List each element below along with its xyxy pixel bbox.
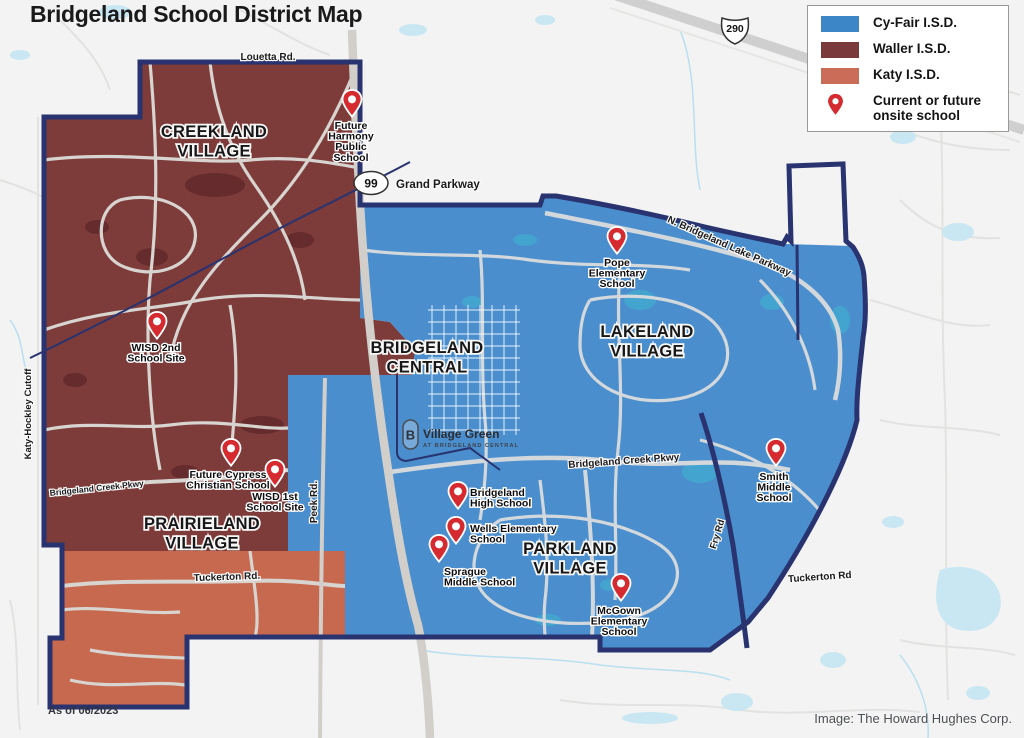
road-label-katy-hockley-cutoff: Katy-Hockley Cutoff [23, 368, 34, 460]
road-label-tuckerton-rd-west: Tuckerton Rd. [193, 571, 260, 584]
village-label-parkland: PARKLANDVILLAGE [523, 540, 617, 578]
legend-item-school-pin: Current or future onsite school [821, 93, 1000, 123]
school-label-smith-middle-school: SmithMiddleSchool [756, 471, 791, 504]
legend-item-waller: Waller I.S.D. [821, 41, 1000, 58]
school-label-future-harmony-public-school: FutureHarmonyPublicSchool [328, 120, 374, 164]
road-label-peek-rd: Peek Rd. [309, 481, 320, 523]
legend-label: Waller I.S.D. [873, 41, 951, 57]
school-label-wisd-1st-school-site: WISD 1stSchool Site [246, 491, 303, 514]
school-pin-icon [827, 93, 844, 116]
page-title: Bridgeland School District Map [30, 1, 362, 28]
school-label-wisd-2nd-school-site: WISD 2ndSchool Site [127, 342, 184, 365]
village-green-name: Village Green [423, 427, 499, 441]
shield-number: 290 [726, 23, 744, 35]
legend-label: Katy I.S.D. [873, 67, 940, 83]
school-label-bridgeland-high-school: BridgelandHigh School [470, 487, 531, 510]
village-green-mark: B [406, 428, 415, 443]
village-green-subtitle: AT BRIDGELAND CENTRAL [423, 443, 519, 449]
village-label-lakeland: LAKELANDVILLAGE [600, 323, 693, 361]
boundary-notch [789, 164, 846, 241]
legend: Cy-Fair I.S.D. Waller I.S.D. Katy I.S.D.… [807, 5, 1009, 132]
image-credit: Image: The Howard Hughes Corp. [814, 711, 1012, 726]
katy-swatch [821, 68, 859, 84]
as-of-date: As of 06/2023 [48, 705, 118, 717]
cyfair-swatch [821, 16, 859, 32]
legend-item-katy: Katy I.S.D. [821, 67, 1000, 84]
road-label-louetta-rd: Louetta Rd. [241, 52, 296, 63]
waller-swatch [821, 42, 859, 58]
legend-label: Cy-Fair I.S.D. [873, 15, 957, 31]
shield-number: 99 [364, 177, 378, 191]
road-label-hwy-99: Grand Parkway [396, 179, 480, 191]
school-label-future-cypress-christian-school: Future CypressChristian School [186, 469, 270, 492]
legend-label: Current or future onsite school [873, 93, 993, 123]
legend-item-cyfair: Cy-Fair I.S.D. [821, 15, 1000, 32]
village-label-bridgeland-central: BRIDGELANDCENTRAL [371, 339, 484, 377]
